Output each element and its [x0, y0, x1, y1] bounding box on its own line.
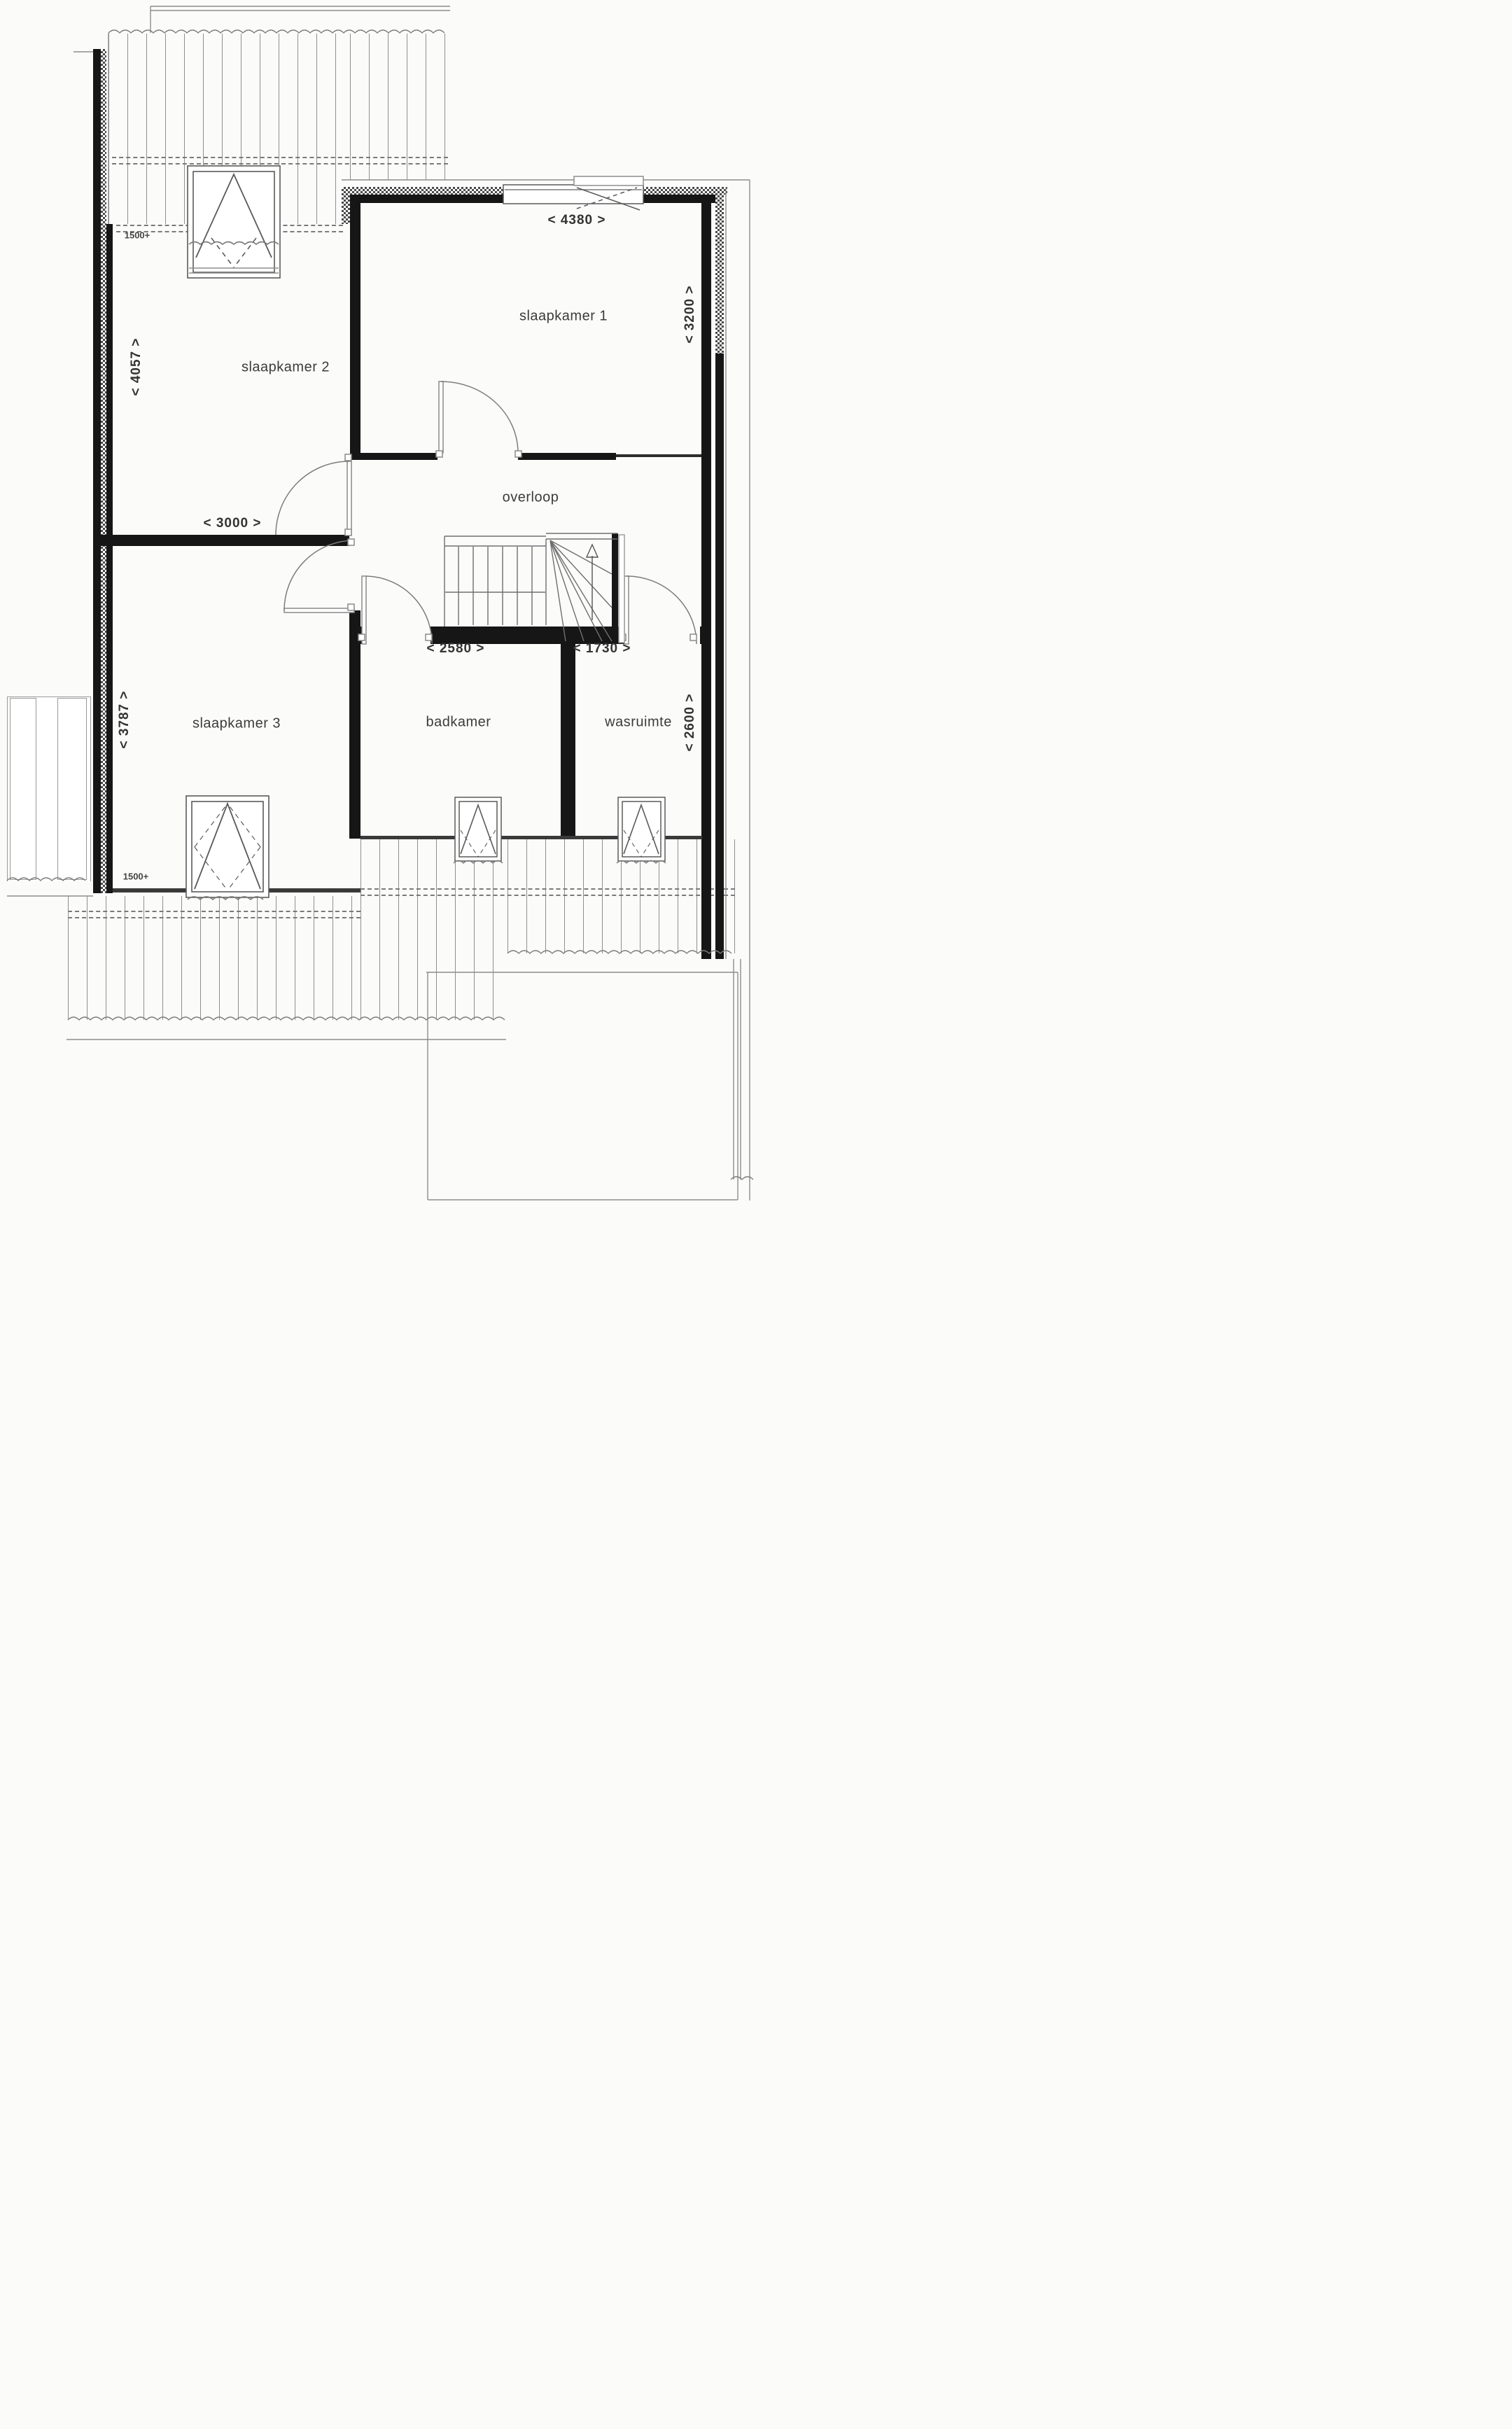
- wavy-bottom-right-roof: [507, 951, 731, 953]
- dimension-sl2-width: < 3000 >: [203, 516, 261, 531]
- height-marker-bottom: 1500+: [123, 871, 149, 882]
- dakraam-badkamer: [454, 797, 503, 863]
- room-label-slaapkamer-3: slaapkamer 3: [192, 716, 281, 732]
- wavy-bottom-left-roof: [68, 1017, 505, 1020]
- dimension-sl1-depth: < 3200 >: [682, 285, 698, 343]
- dimension-wasruimte-width: < 1730 >: [573, 641, 631, 657]
- room-label-slaapkamer-2: slaapkamer 2: [241, 360, 330, 376]
- dimension-sl2-depth: < 4057 >: [129, 337, 144, 395]
- height-marker-top: 1500+: [125, 230, 150, 241]
- wavy-left-annex: [7, 878, 85, 881]
- sl1-window: [503, 176, 643, 210]
- wavy-top-roof: [108, 30, 444, 33]
- dimension-badkamer-width: < 2580 >: [426, 641, 484, 657]
- floor-plan-page: slaapkamer 1 slaapkamer 2 slaapkamer 3 o…: [0, 0, 756, 1214]
- plan-linework: [0, 0, 756, 1214]
- dakraam-top: [188, 166, 280, 278]
- dimension-wasruimte-depth: < 2600 >: [682, 693, 698, 751]
- room-label-badkamer: badkamer: [426, 715, 491, 731]
- room-label-wasruimte: wasruimte: [605, 715, 672, 731]
- staircase: [444, 533, 624, 643]
- dakraam-wasruimte: [617, 797, 666, 863]
- dimension-sl1-width: < 4380 >: [547, 213, 605, 228]
- room-label-slaapkamer-1: slaapkamer 1: [519, 309, 608, 325]
- room-label-overloop: overloop: [503, 490, 559, 506]
- dakraam-sl3: [186, 796, 269, 899]
- doors: [276, 381, 696, 644]
- dimension-sl3-depth: < 3787 >: [117, 690, 132, 748]
